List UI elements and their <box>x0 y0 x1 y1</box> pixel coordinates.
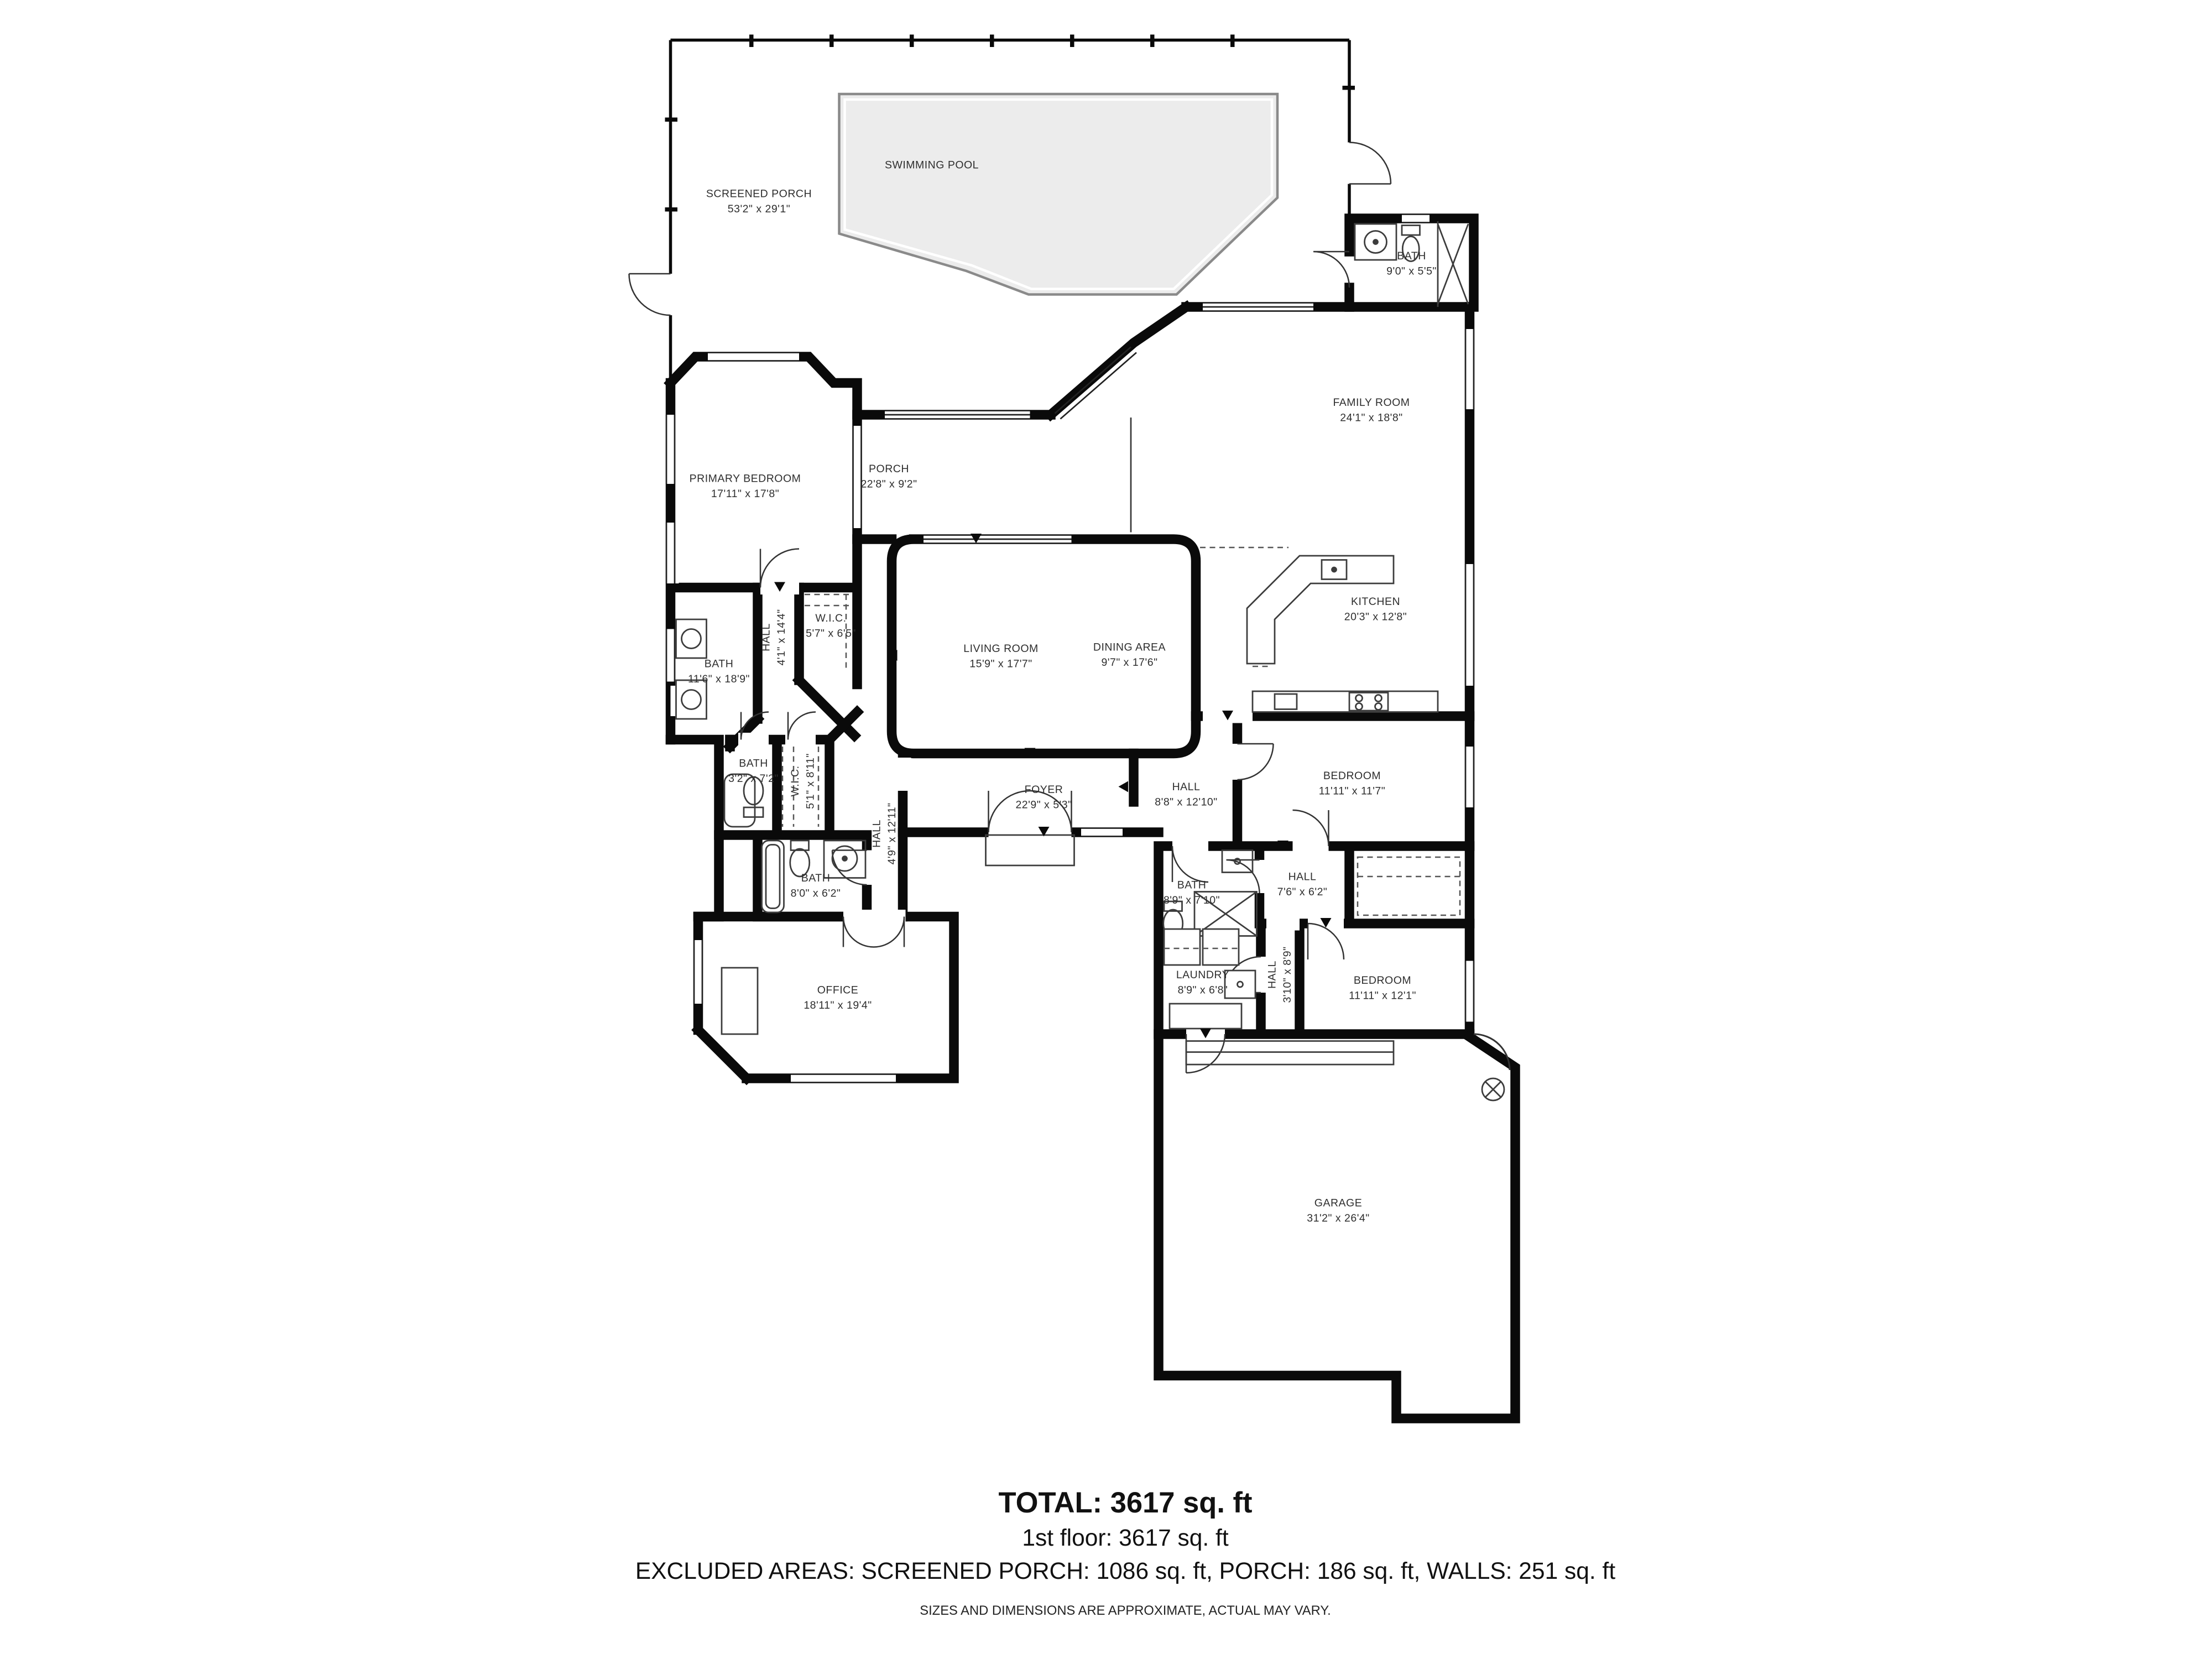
room-label-living-room: LIVING ROOM 15'9" x 17'7" <box>963 642 1038 671</box>
room-label-bedroom-1: BEDROOM 11'11" x 11'7" <box>1319 769 1385 799</box>
room-label-bath-toilet: BATH 3'2" x 7'2" <box>728 757 779 786</box>
office-desk-icon <box>722 968 758 1034</box>
room-label-foyer: FOYER 22'9" x 5'3" <box>1015 783 1072 812</box>
room-label-office: OFFICE 18'11" x 19'4" <box>804 984 872 1013</box>
room-label-hall-laundry: HALL 3'10" x 8'9" <box>1266 946 1295 1003</box>
garage-fixtures-icon <box>1186 1041 1504 1101</box>
room-label-swimming-pool: SWIMMING POOL <box>885 159 979 173</box>
room-label-hall-bedrooms: HALL 8'8" x 12'10" <box>1155 780 1217 810</box>
room-label-bath-shower: BATH 8'9" x 7'10" <box>1164 879 1220 908</box>
floor-plan: SCREENED PORCH 53'2" x 29'1" SWIMMING PO… <box>0 0 2212 1659</box>
room-label-family-room: FAMILY ROOM 24'1" x 18'8" <box>1333 396 1410 425</box>
first-floor-area-text: 1st floor: 3617 sq. ft <box>1022 1525 1228 1553</box>
kitchen-counter-icon <box>1247 556 1438 712</box>
disclaimer-text: SIZES AND DIMENSIONS ARE APPROXIMATE, AC… <box>920 1604 1331 1619</box>
room-label-wic-1: W.I.C. 5'7" x 6'5" <box>806 612 856 641</box>
room-label-screened-porch: SCREENED PORCH 53'2" x 29'1" <box>706 187 812 217</box>
floor-plan-drawing <box>0 0 2212 1659</box>
swimming-pool-shape <box>839 94 1278 295</box>
room-label-bath-hall: BATH 8'0" x 6'2" <box>791 872 841 901</box>
room-label-hall-office: HALL 4'9" x 12'11" <box>870 803 900 865</box>
room-label-bedroom-2: BEDROOM 11'11" x 12'1" <box>1349 974 1416 1003</box>
total-area-text: TOTAL: 3617 sq. ft <box>999 1488 1253 1521</box>
room-label-hall-middle: HALL 7'6" x 6'2" <box>1277 870 1328 900</box>
room-label-garage: GARAGE 31'2" x 26'4" <box>1307 1197 1369 1226</box>
room-label-porch: PORCH 22'8" x 9'2" <box>860 462 917 492</box>
room-label-primary-bedroom: PRIMARY BEDROOM 17'11" x 17'8" <box>690 472 801 502</box>
room-label-dining-area: DINING AREA 9'7" x 17'6" <box>1093 641 1166 670</box>
excluded-areas-text: EXCLUDED AREAS: SCREENED PORCH: 1086 sq.… <box>635 1558 1615 1586</box>
floor-plan-page: SCREENED PORCH 53'2" x 29'1" SWIMMING PO… <box>0 0 2212 1659</box>
room-label-wic-2: W.I.C. 5'1" x 8'11" <box>789 753 818 809</box>
entry-stoop <box>986 835 1074 865</box>
room-label-bath-primary: BATH 11'6" x 18'9" <box>688 658 750 687</box>
room-label-hall-primary: HALL 4'1" x 14'4" <box>760 609 789 665</box>
room-label-bath-pool: BATH 9'0" x 5'5" <box>1386 249 1437 279</box>
room-label-kitchen: KITCHEN 20'3" x 12'8" <box>1344 595 1407 624</box>
room-label-laundry: LAUNDRY 8'9" x 6'8" <box>1176 968 1229 998</box>
